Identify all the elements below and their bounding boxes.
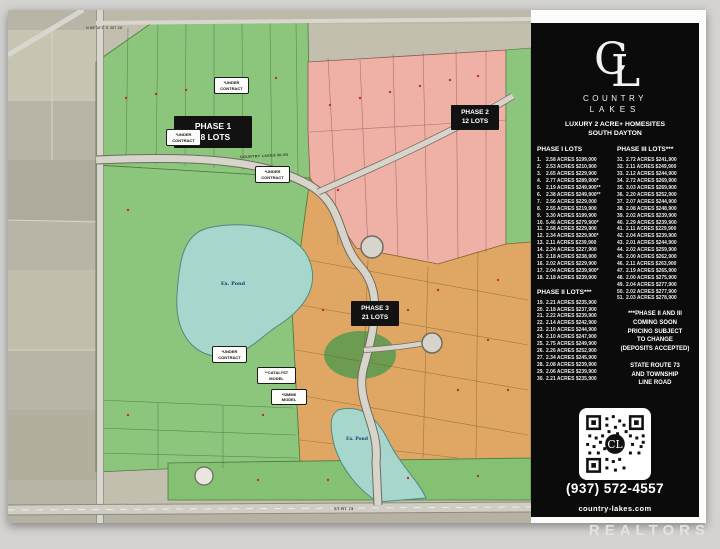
simms-model-line2: MODEL (272, 397, 306, 402)
lot-details: 2.19 ACRES $249,900** (546, 185, 601, 192)
lot-number: 32. (617, 164, 626, 171)
lot-details: 2.53 ACRES $210,900 (546, 164, 597, 171)
lot-row: 11. 2.58 ACRES $229,900 (537, 226, 613, 233)
lot-row: 43. 2.01 ACRES $244,900 (617, 240, 693, 247)
qr-code: CL (579, 408, 651, 480)
lot-row: 8. 2.55 ACRES $219,900 (537, 206, 613, 213)
phase2-lot-list: 19. 2.21 ACRES $235,900 20. 2.18 ACRES $… (537, 300, 613, 383)
lot-row: 2. 2.53 ACRES $210,900 (537, 164, 613, 171)
lot-row: 7. 2.56 ACRES $229,000 (537, 199, 613, 206)
lot-details: 2.00 ACRES $262,900 (626, 254, 677, 261)
lot-row: 33. 2.12 ACRES $244,900 (617, 171, 693, 178)
lot-number: 3. (537, 171, 546, 178)
lot-row: 35. 3.03 ACRES $269,900 (617, 185, 693, 192)
under-contract-line2: CONTRACT (213, 355, 246, 360)
lot-details: 2.11 ACRES $249,900 (626, 164, 676, 171)
lot-number: 29. (537, 369, 546, 376)
lot-details: 2.11 ACRES $239,900 (546, 240, 596, 247)
lot-details: 2.02 ACRES $259,900 (626, 247, 677, 254)
lot-details: 2.19 ACRES $265,900 (626, 268, 677, 275)
lot-number: 17. (537, 268, 546, 275)
location-line: STATE ROUTE 73 (617, 362, 693, 371)
lot-row: 1. 2.58 ACRES $199,000 (537, 157, 613, 164)
lot-row: 4. 2.77 ACRES $289,900* (537, 178, 613, 185)
lot-row: 6. 2.38 ACRES $249,900** (537, 192, 613, 199)
lot-row: 9. 3.30 ACRES $199,900 (537, 213, 613, 220)
monogram-l: L (611, 46, 640, 93)
lot-details: 2.02 ACRES $277,900 (626, 289, 677, 296)
lot-row: 25. 2.75 ACRES $249,900 (537, 341, 613, 348)
lot-number: 38. (617, 206, 626, 213)
cl-monogram-icon: C L (578, 31, 652, 93)
state-route-73-label: ST RT 73 (334, 506, 354, 511)
lot-details: 2.29 ACRES $239,900 (626, 220, 677, 227)
lot-row: 16. 2.02 ACRES $229,900 (537, 261, 613, 268)
aerial-map-graphic (8, 10, 531, 523)
lot-details: 2.12 ACRES $244,900 (626, 171, 677, 178)
lot-number: 5. (537, 185, 546, 192)
lot-details: 2.18 ACRES $239,900 (546, 275, 597, 282)
phase3-lot-list-block: PHASE III LOTS*** 31. 2.72 ACRES $241,90… (617, 146, 693, 302)
lot-details: 2.75 ACRES $249,900 (546, 341, 597, 348)
brand-name-country: COUNTRY (583, 94, 647, 103)
lot-details: 2.34 ACRES $245,900 (546, 355, 597, 362)
lot-number: 35. (617, 185, 626, 192)
phase1-lot-list-block: PHASE I LOTS 1. 2.58 ACRES $199,000 2. (537, 146, 613, 281)
phase2-badge-line2: 12 LOTS (451, 118, 499, 126)
lot-row: 40. 2.29 ACRES $239,900 (617, 220, 693, 227)
under-contract-line2: CONTRACT (167, 138, 200, 143)
lot-row: 41. 2.11 ACRES $229,900 (617, 226, 693, 233)
brand-name-lakes: LAKES (590, 105, 641, 114)
page: N 89°18'3" E 357.26' PHASE 1 18 LOTS PHA… (0, 0, 720, 549)
coming-soon-note: ***PHASE II AND IIICOMING SOONPRICING SU… (617, 310, 693, 353)
lot-number: 33. (617, 171, 626, 178)
lot-row: 38. 2.08 ACRES $248,900 (617, 206, 693, 213)
lot-details: 2.04 ACRES $239,900* (546, 268, 599, 275)
lot-number: 48. (617, 275, 626, 282)
lot-details: 2.10 ACRES $247,900 (546, 334, 597, 341)
lot-row: 15. 2.18 ACRES $238,900 (537, 254, 613, 261)
lot-details: 2.20 ACRES $252,900 (626, 192, 677, 199)
lot-number: 39. (617, 213, 626, 220)
catalyst-model-badge: **CATALYST MODEL (257, 367, 296, 384)
lot-number: 13. (537, 240, 546, 247)
lot-row: 26. 2.26 ACRES $252,900 (537, 348, 613, 355)
lot-number: 51. (617, 295, 626, 302)
lot-details: 2.08 ACRES $239,900 (546, 362, 597, 369)
info-panel: C L COUNTRY LAKES LUXURY 2 ACRE+ HOMESIT… (531, 23, 699, 517)
lot-row: 23. 2.10 ACRES $244,900 (537, 327, 613, 334)
lot-number: 40. (617, 220, 626, 227)
farmland-fields (8, 10, 96, 523)
lot-number: 2. (537, 164, 546, 171)
note-line: (DEPOSITS ACCEPTED) (617, 345, 693, 354)
lot-number: 6. (537, 192, 546, 199)
lot-details: 2.18 ACRES $237,900 (546, 307, 597, 314)
lot-details: 5.46 ACRES $279,900* (546, 220, 599, 227)
tagline-line1: LUXURY 2 ACRE+ HOMESITES (565, 120, 665, 129)
lot-row: 19. 2.21 ACRES $235,900 (537, 300, 613, 307)
country-lakes-logo: C L (578, 31, 652, 93)
lot-details: 2.26 ACRES $252,900 (546, 348, 597, 355)
qr-center-monogram: CL (607, 438, 622, 451)
tagline-line2: SOUTH DAYTON (565, 129, 665, 138)
column-left: PHASE I LOTS 1. 2.58 ACRES $199,000 2. (537, 146, 613, 388)
lot-details: 2.07 ACRES $244,900 (626, 199, 677, 206)
lot-number: 25. (537, 341, 546, 348)
lot-row: 34. 2.72 ACRES $269,900 (617, 178, 693, 185)
lot-details: 2.04 ACRES $277,900 (626, 282, 677, 289)
country-lakes-flyer: N 89°18'3" E 357.26' PHASE 1 18 LOTS PHA… (8, 10, 706, 523)
green-east-strip (506, 48, 531, 244)
under-contract-badge: *UNDER CONTRACT (214, 77, 249, 94)
lot-row: 3. 2.65 ACRES $229,900 (537, 171, 613, 178)
note-line: TO CHANGE (617, 336, 693, 345)
lot-row: 27. 2.34 ACRES $245,900 (537, 355, 613, 362)
tagline: LUXURY 2 ACRE+ HOMESITES SOUTH DAYTON (565, 120, 665, 138)
lot-number: 31. (617, 157, 626, 164)
catalyst-model-line2: MODEL (258, 376, 295, 381)
lot-details: 2.06 ACRES $239,900 (546, 369, 597, 376)
lot-number: 10. (537, 220, 546, 227)
lot-number: 49. (617, 282, 626, 289)
lot-details: 2.10 ACRES $244,900 (546, 327, 597, 334)
under-contract-line2: CONTRACT (215, 86, 248, 91)
simms-model-badge: *SIMMS MODEL (271, 389, 307, 405)
lot-details: 2.02 ACRES $229,900 (546, 261, 597, 268)
location-text: STATE ROUTE 73AND TOWNSHIPLINE ROAD (617, 362, 693, 388)
lot-row: 30. 2.21 ACRES $235,900 (537, 376, 613, 383)
phase3-lot-list: 31. 2.72 ACRES $241,900 32. 2.11 ACRES $… (617, 157, 693, 302)
plat-map: N 89°18'3" E 357.26' PHASE 1 18 LOTS PHA… (8, 10, 531, 523)
lot-row: 46. 2.11 ACRES $263,900 (617, 261, 693, 268)
lot-details: 2.38 ACRES $249,900** (546, 192, 601, 199)
website-url: country-lakes.com (531, 504, 699, 513)
lot-details: 3.03 ACRES $269,900 (626, 185, 677, 192)
lot-details: 2.77 ACRES $289,900* (546, 178, 599, 185)
lot-number: 24. (537, 334, 546, 341)
note-line: COMING SOON (617, 319, 693, 328)
lot-number: 23. (537, 327, 546, 334)
lot-number: 36. (617, 192, 626, 199)
lot-row: 42. 2.04 ACRES $239,900 (617, 233, 693, 240)
lot-row: 48. 2.00 ACRES $275,900 (617, 275, 693, 282)
lot-details: 2.72 ACRES $269,900 (626, 178, 677, 185)
qr-code-icon: CL (584, 413, 646, 475)
lot-number: 9. (537, 213, 546, 220)
lot-row: 44. 2.02 ACRES $259,900 (617, 247, 693, 254)
lot-number: 30. (537, 376, 546, 383)
lot-row: 50. 2.02 ACRES $277,900 (617, 289, 693, 296)
survey-bearing-text: N 89°18'3" E 357.26' (86, 26, 123, 30)
phase3-badge-line1: PHASE 3 (351, 305, 399, 313)
lot-number: 28. (537, 362, 546, 369)
lot-number: 11. (537, 226, 546, 233)
phase2-lot-list-block: PHASE II LOTS*** 19. 2.21 ACRES $235,900 (537, 289, 613, 383)
lot-details: 2.72 ACRES $241,900 (626, 157, 677, 164)
location-line: LINE ROAD (617, 379, 693, 388)
lot-number: 22. (537, 320, 546, 327)
lot-number: 42. (617, 233, 626, 240)
lot-details: 2.11 ACRES $229,900 (626, 226, 676, 233)
lot-details: 2.34 ACRES $229,900* (546, 233, 599, 240)
realtors-watermark: REALTORS (589, 522, 710, 539)
column-right: PHASE III LOTS*** 31. 2.72 ACRES $241,90… (617, 146, 693, 388)
lot-row: 18. 2.18 ACRES $239,900 (537, 275, 613, 282)
lot-row: 13. 2.11 ACRES $239,900 (537, 240, 613, 247)
lot-row: 24. 2.10 ACRES $247,900 (537, 334, 613, 341)
lot-number: 45. (617, 254, 626, 261)
lot-number: 41. (617, 226, 626, 233)
pond-label-large: Ex. Pond (208, 281, 258, 287)
lot-details: 2.04 ACRES $239,900 (626, 233, 677, 240)
lot-number: 27. (537, 355, 546, 362)
lot-list-columns: PHASE I LOTS 1. 2.58 ACRES $199,000 2. (531, 146, 699, 388)
lot-details: 2.00 ACRES $275,900 (626, 275, 677, 282)
lot-details: 2.58 ACRES $199,000 (546, 157, 597, 164)
phase3-header: PHASE III LOTS*** (617, 146, 693, 153)
lot-number: 37. (617, 199, 626, 206)
lot-number: 21. (537, 313, 546, 320)
phase2-badge-line1: PHASE 2 (451, 109, 499, 117)
lot-row: 36. 2.20 ACRES $252,900 (617, 192, 693, 199)
lot-row: 10. 5.46 ACRES $279,900* (537, 220, 613, 227)
lot-details: 2.08 ACRES $248,900 (626, 206, 677, 213)
lot-number: 44. (617, 247, 626, 254)
lot-number: 50. (617, 289, 626, 296)
phase3-badge-line2: 21 LOTS (351, 314, 399, 322)
lot-details: 2.22 ACRES $239,900 (546, 313, 597, 320)
lot-row: 32. 2.11 ACRES $249,900 (617, 164, 693, 171)
location-line: AND TOWNSHIP (617, 371, 693, 380)
lot-row: 37. 2.07 ACRES $244,900 (617, 199, 693, 206)
lot-number: 16. (537, 261, 546, 268)
lot-details: 2.24 ACRES $227,900 (546, 247, 597, 254)
lot-row: 17. 2.04 ACRES $239,900* (537, 268, 613, 275)
note-line: PRICING SUBJECT (617, 328, 693, 337)
under-contract-badge: *UNDER CONTRACT (166, 129, 201, 146)
lot-number: 8. (537, 206, 546, 213)
lot-number: 1. (537, 157, 546, 164)
lot-details: 2.21 ACRES $235,900 (546, 376, 597, 383)
lot-details: 2.14 ACRES $242,900 (546, 320, 597, 327)
lot-row: 21. 2.22 ACRES $239,900 (537, 313, 613, 320)
lot-number: 4. (537, 178, 546, 185)
lot-details: 2.21 ACRES $235,900 (546, 300, 597, 307)
lot-row: 51. 2.03 ACRES $278,900 (617, 295, 693, 302)
lot-row: 20. 2.18 ACRES $237,900 (537, 307, 613, 314)
lot-number: 7. (537, 199, 546, 206)
phase3-badge: PHASE 3 21 LOTS (351, 301, 399, 326)
lot-number: 47. (617, 268, 626, 275)
lot-number: 34. (617, 178, 626, 185)
lot-number: 15. (537, 254, 546, 261)
lot-number: 20. (537, 307, 546, 314)
note-line: ***PHASE II AND III (617, 310, 693, 319)
lot-details: 2.02 ACRES $239,900 (626, 213, 677, 220)
lot-number: 43. (617, 240, 626, 247)
lot-row: 47. 2.19 ACRES $265,900 (617, 268, 693, 275)
lot-row: 31. 2.72 ACRES $241,900 (617, 157, 693, 164)
phase1-header: PHASE I LOTS (537, 146, 613, 153)
lot-row: 5. 2.19 ACRES $249,900** (537, 185, 613, 192)
lot-number: 46. (617, 261, 626, 268)
lot-row: 28. 2.08 ACRES $239,900 (537, 362, 613, 369)
lot-details: 2.18 ACRES $238,900 (546, 254, 597, 261)
lot-details: 2.56 ACRES $229,000 (546, 199, 597, 206)
lot-row: 14. 2.24 ACRES $227,900 (537, 247, 613, 254)
lot-details: 2.55 ACRES $219,900 (546, 206, 597, 213)
lot-row: 29. 2.06 ACRES $239,900 (537, 369, 613, 376)
under-contract-line2: CONTRACT (256, 175, 289, 180)
phase2-badge: PHASE 2 12 LOTS (451, 105, 499, 130)
lot-row: 49. 2.04 ACRES $277,900 (617, 282, 693, 289)
phase1-lot-list: 1. 2.58 ACRES $199,000 2. 2.53 ACRES $21… (537, 157, 613, 281)
lot-details: 2.58 ACRES $229,900 (546, 226, 597, 233)
lot-number: 19. (537, 300, 546, 307)
lot-number: 14. (537, 247, 546, 254)
phone-number: (937) 572-4557 (531, 481, 699, 496)
lot-details: 2.11 ACRES $263,900 (626, 261, 676, 268)
lot-details: 2.65 ACRES $229,900 (546, 171, 597, 178)
lot-details: 2.01 ACRES $244,900 (626, 240, 677, 247)
lot-row: 45. 2.00 ACRES $262,900 (617, 254, 693, 261)
pond-label-small: Ex. Pond (335, 437, 379, 442)
lot-number: 12. (537, 233, 546, 240)
lot-details: 2.03 ACRES $278,900 (626, 295, 677, 302)
under-contract-badge: *UNDER CONTRACT (212, 346, 247, 363)
lot-row: 22. 2.14 ACRES $242,900 (537, 320, 613, 327)
under-contract-badge: *UNDER CONTRACT (255, 166, 290, 183)
lot-row: 12. 2.34 ACRES $229,900* (537, 233, 613, 240)
lot-details: 3.30 ACRES $199,900 (546, 213, 597, 220)
lot-number: 18. (537, 275, 546, 282)
phase2-header: PHASE II LOTS*** (537, 289, 613, 296)
lot-row: 39. 2.02 ACRES $239,900 (617, 213, 693, 220)
lot-number: 26. (537, 348, 546, 355)
